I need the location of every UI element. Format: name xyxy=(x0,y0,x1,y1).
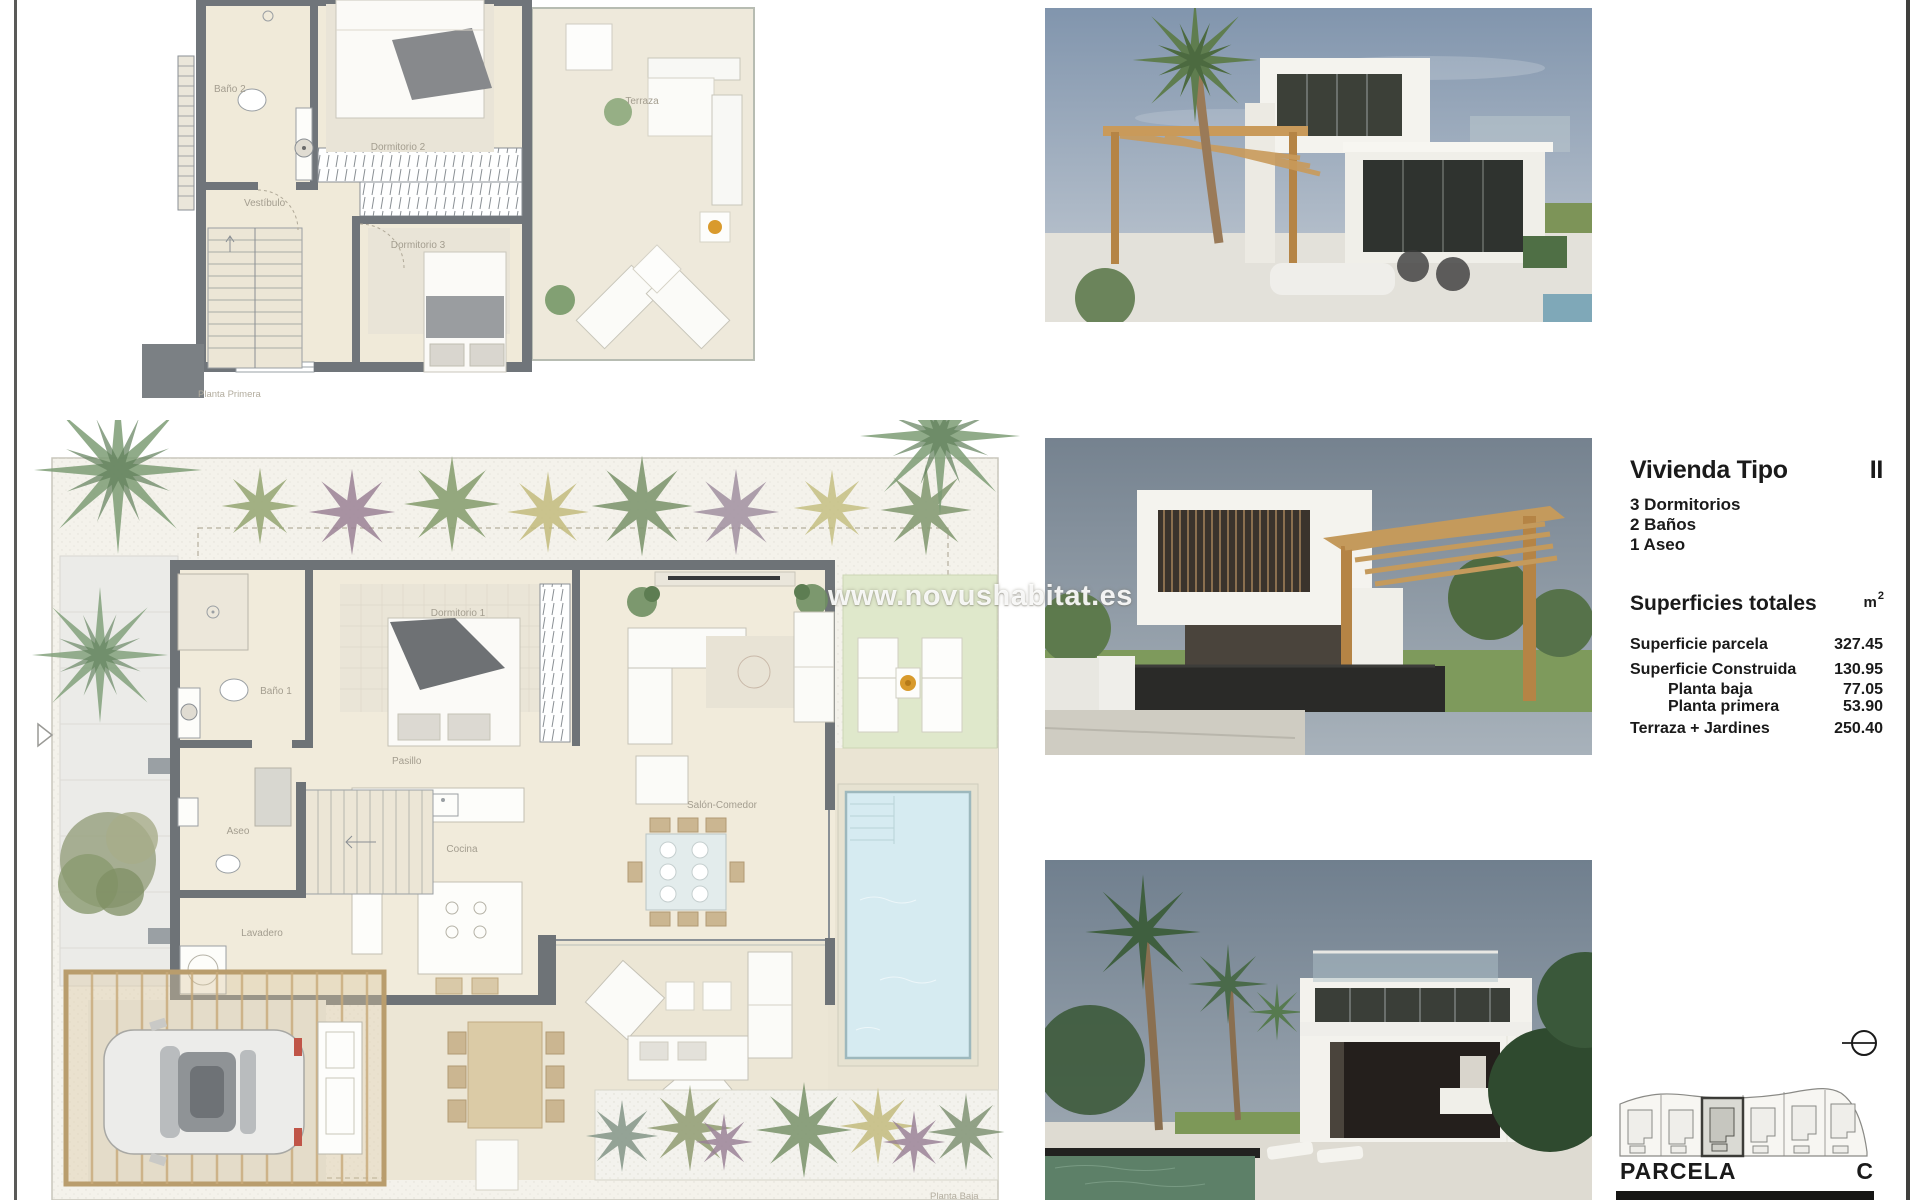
photo-villa-render-3 xyxy=(1045,860,1592,1200)
site-plan-strip xyxy=(1614,1078,1876,1164)
room-label-dormitorio3: Dormitorio 3 xyxy=(391,240,446,251)
room-label-terraza: Terraza xyxy=(625,96,659,107)
sheet-border-right xyxy=(1906,0,1910,1200)
garden-bed-bottom xyxy=(586,1082,1004,1180)
parcela-underline-bar xyxy=(1616,1191,1874,1200)
surface-row-parcela: Superficie parcela327.45 xyxy=(1630,636,1883,654)
feature-bedrooms: 3 Dormitorios xyxy=(1630,495,1741,515)
surface-row-terraza-jardines: Terraza + Jardines250.40 xyxy=(1630,720,1883,738)
room-label-dormitorio2: Dormitorio 2 xyxy=(371,142,426,153)
room-label-aseo: Aseo xyxy=(227,826,250,837)
bed-dormitorio2 xyxy=(326,0,494,152)
room-label-pasillo: Pasillo xyxy=(392,756,422,767)
plan-caption-planta-primera: Planta Primera xyxy=(198,389,262,400)
watermark-text: www.novushabitat.es xyxy=(828,580,1133,613)
orientation-marker-triangle xyxy=(38,724,52,746)
stairs-first-floor xyxy=(208,228,302,368)
car-top-view xyxy=(104,1018,304,1167)
villa-type-title: Vivienda Tipo xyxy=(1630,456,1788,485)
surfaces-title: Superficies totales xyxy=(1630,592,1817,616)
balcony-rail xyxy=(178,56,194,210)
surface-row-planta-primera: Planta primera53.90 xyxy=(1630,698,1883,716)
brochure-page: Terraza xyxy=(0,0,1920,1200)
sheet-border-left xyxy=(14,0,17,1200)
surface-row-planta-baja: Planta baja77.05 xyxy=(1630,681,1883,699)
plan-caption-planta-baja: Planta Baja xyxy=(930,1191,979,1200)
room-label-dormitorio1: Dormitorio 1 xyxy=(431,608,486,619)
feature-list: 3 Dormitorios 2 Baños 1 Aseo xyxy=(1630,495,1741,555)
photo-villa-render-1 xyxy=(1045,8,1592,322)
room-label-bano2: Baño 2 xyxy=(214,84,246,95)
villa-type-value: II xyxy=(1870,456,1883,485)
ground-floor-building: Baño 1 Dormitorio 1 xyxy=(170,560,835,1005)
room-label-lavadero: Lavadero xyxy=(241,928,283,939)
room-label-bano1: Baño 1 xyxy=(260,686,292,697)
carport xyxy=(66,972,384,1186)
room-label-cocina: Cocina xyxy=(446,844,478,855)
feature-toilets: 1 Aseo xyxy=(1630,535,1741,555)
parcela-label: PARCELA xyxy=(1620,1158,1736,1185)
first-floor-building: Baño 2 Dormitorio 2 Vestíbulo Dormitorio… xyxy=(142,0,532,398)
floor-plan-ground-floor: Baño 1 Dormitorio 1 xyxy=(30,420,1020,1200)
floor-plan-first-floor: Terraza xyxy=(140,0,780,410)
surfaces-unit: m2 xyxy=(1864,592,1883,616)
room-label-vestibulo: Vestíbulo xyxy=(244,198,286,209)
north-compass-icon xyxy=(1838,1026,1882,1060)
swimming-pool xyxy=(838,784,978,1066)
site-plan-highlighted-lot xyxy=(1702,1098,1743,1156)
feature-bathrooms: 2 Baños xyxy=(1630,515,1741,535)
terrace-area: Terraza xyxy=(532,8,754,360)
surface-row-construida: Superficie Construida130.95 xyxy=(1630,661,1883,679)
parcela-value: C xyxy=(1856,1158,1874,1185)
room-label-salon: Salón-Comedor xyxy=(687,800,758,811)
